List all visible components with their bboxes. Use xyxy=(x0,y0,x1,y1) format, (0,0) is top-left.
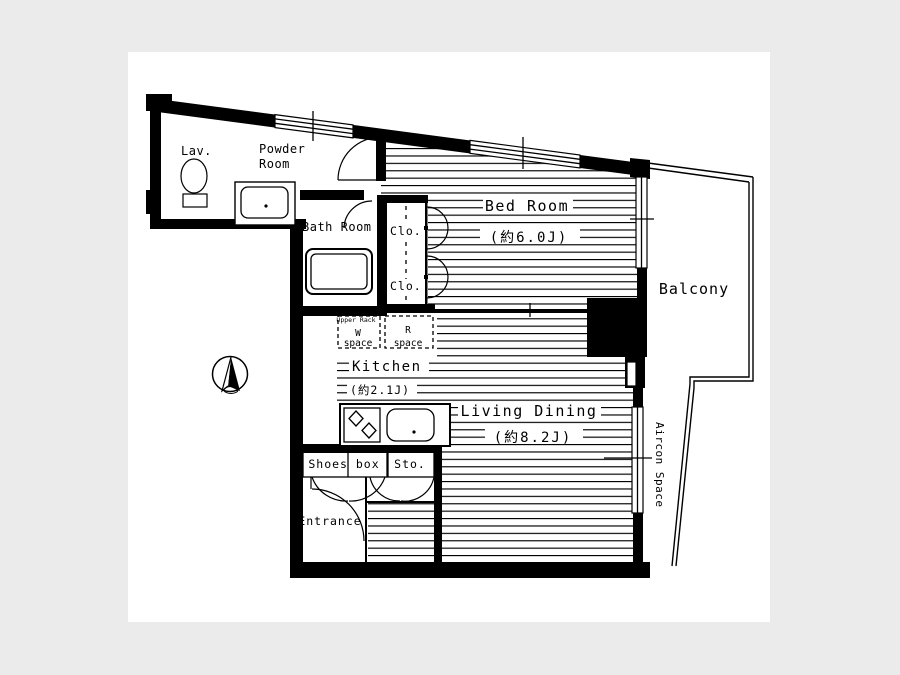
bedroom-label: Bed Room xyxy=(485,197,569,215)
wall-slot xyxy=(627,362,636,386)
bath-room-label: Bath Room xyxy=(302,220,372,234)
floorplan-image: Lav. Powder Room Bath Room Clo. Clo. Bed… xyxy=(0,0,900,675)
closet1-label: Clo. xyxy=(390,224,422,238)
floorplan-svg: Lav. Powder Room Bath Room Clo. Clo. Bed… xyxy=(0,0,900,675)
lav-label: Lav. xyxy=(181,144,212,158)
living-dining-label: Living Dining xyxy=(461,402,598,420)
closet-front-line xyxy=(425,203,428,307)
kitchen-drain xyxy=(412,430,415,433)
bedroom-right-wall-top xyxy=(637,160,647,178)
closet2-hinge xyxy=(424,275,428,279)
closet1-hinge xyxy=(424,226,428,230)
kitchen-label: Kitchen xyxy=(352,359,422,375)
bedroom-right-wall-bottom xyxy=(637,266,647,300)
entrance-hall-divider xyxy=(365,477,367,562)
left-wall-nub xyxy=(146,190,156,214)
vanity-drain xyxy=(264,204,267,207)
living-right-wall-mid xyxy=(633,386,643,408)
upper-rack-label: Upper Rack xyxy=(336,316,375,324)
bedroom-corridor-divider xyxy=(428,309,590,313)
toilet-bowl xyxy=(181,159,207,193)
shoes-box-label: Shoes box xyxy=(308,457,379,471)
bath-right-wall xyxy=(377,198,387,310)
closet2-label: Clo. xyxy=(390,279,422,293)
bath-bottom-wall xyxy=(303,306,387,316)
r-space-label-2: space xyxy=(394,338,423,349)
r-space-label-1: R xyxy=(405,325,411,336)
aircon-space-label: Aircon Space xyxy=(653,422,666,507)
kitchen-size-label: (約2.1J) xyxy=(350,383,410,397)
bedroom-size-label: (約6.0J) xyxy=(490,230,569,246)
hall-living-wall xyxy=(434,444,442,564)
living-dining-size-label: (約8.2J) xyxy=(494,430,573,446)
bath-top-wall xyxy=(300,190,364,200)
powder-bedroom-wall xyxy=(376,137,386,181)
living-right-wall-low xyxy=(633,513,643,565)
bottom-wall xyxy=(290,562,650,578)
closet-bottom-wall xyxy=(387,304,435,313)
entry-hall-floor xyxy=(368,502,434,562)
entrance-label: Entrance xyxy=(298,514,361,528)
pipe-shaft-block xyxy=(587,298,647,357)
storage-label: Sto. xyxy=(394,457,426,471)
w-space-label-2: space xyxy=(344,338,373,349)
balcony-label: Balcony xyxy=(659,280,729,298)
bathtub xyxy=(306,249,372,294)
toilet-tank xyxy=(183,194,207,207)
